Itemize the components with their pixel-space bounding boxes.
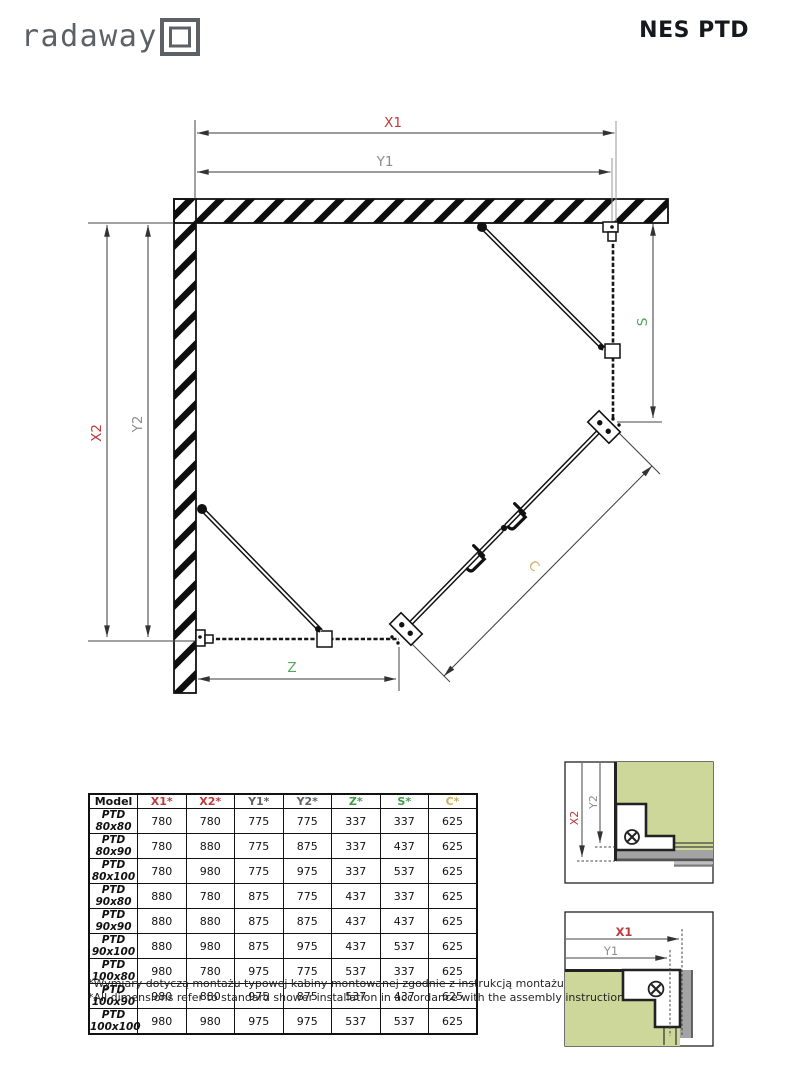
value-cell: 780 (138, 834, 187, 859)
top-wall (174, 199, 668, 223)
wall-bracket-bottom (196, 630, 213, 646)
table-row: PTD 100x100980980975975537537625 (89, 1009, 477, 1035)
value-cell: 337 (380, 884, 429, 909)
glass-clamp-bottom (317, 631, 332, 647)
label-x2: X2 (89, 424, 105, 442)
value-cell: 537 (380, 859, 429, 884)
model-cell: PTD 90x80 (89, 884, 138, 909)
label-c: C (525, 558, 542, 575)
value-cell: 437 (332, 884, 381, 909)
dim-c (444, 466, 652, 676)
value-cell: 437 (332, 934, 381, 959)
model-col-header: Model (89, 794, 138, 809)
value-cell: 875 (235, 884, 284, 909)
value-cell: 780 (138, 859, 187, 884)
logo-square-icon (162, 20, 198, 54)
value-cell: 775 (283, 809, 332, 834)
model-cell: PTD 80x100 (89, 859, 138, 884)
screw-icon (649, 982, 664, 997)
spec-sheet-page: X1 Y1 X2 Y2 S Z C (0, 0, 789, 1081)
value-cell: 437 (332, 909, 381, 934)
table-row: PTD 80x100780980775975337537625 (89, 859, 477, 884)
value-cell: 437 (380, 834, 429, 859)
model-cell: PTD 80x90 (89, 834, 138, 859)
value-cell: 337 (332, 834, 381, 859)
label-s: S (635, 318, 651, 327)
value-cell: 625 (429, 834, 478, 859)
col-header: Z* (332, 794, 381, 809)
table-row: PTD 80x90780880775875337437625 (89, 834, 477, 859)
page-title: NES PTD (639, 18, 749, 43)
value-cell: 875 (235, 934, 284, 959)
door-hinge-left (197, 504, 207, 514)
main-diagram: X1 Y1 X2 Y2 S Z C (88, 115, 668, 693)
detail1-label-x2: X2 (568, 811, 581, 826)
value-cell: 880 (186, 909, 235, 934)
footnotes: *Wymiary dotyczą montażu typowej kabiny … (88, 977, 624, 1004)
col-header: X2* (186, 794, 235, 809)
label-y2: Y2 (130, 416, 146, 434)
value-cell: 880 (138, 884, 187, 909)
table-row: PTD 90x80880780875775437337625 (89, 884, 477, 909)
model-cell: PTD 80x80 (89, 809, 138, 834)
value-cell: 537 (332, 1009, 381, 1035)
value-cell: 875 (235, 909, 284, 934)
diagonal-double-door (406, 426, 604, 628)
door-hinge-top (477, 222, 487, 232)
col-header: Y2* (283, 794, 332, 809)
value-cell: 880 (138, 934, 187, 959)
brand-logo: radaway (21, 22, 158, 52)
detail2-label-x1: X1 (616, 925, 633, 939)
value-cell: 537 (380, 1009, 429, 1035)
col-header: C* (429, 794, 478, 809)
value-cell: 980 (186, 859, 235, 884)
value-cell: 875 (283, 909, 332, 934)
value-cell: 975 (283, 1009, 332, 1035)
value-cell: 625 (429, 859, 478, 884)
left-wall (174, 199, 196, 693)
detail1-label-y2: Y2 (587, 795, 600, 810)
value-cell: 775 (235, 809, 284, 834)
value-cell: 975 (235, 1009, 284, 1035)
footnote-en: *All dimensions refer to standard shower… (88, 991, 624, 1005)
value-cell: 625 (429, 934, 478, 959)
value-cell: 980 (186, 1009, 235, 1035)
value-cell: 780 (138, 809, 187, 834)
glass-panels (197, 225, 613, 639)
value-cell: 780 (186, 884, 235, 909)
wall-bracket-top (603, 222, 618, 241)
value-cell: 625 (429, 809, 478, 834)
model-cell: PTD 90x100 (89, 934, 138, 959)
col-header: X1* (138, 794, 187, 809)
value-cell: 625 (429, 1009, 478, 1035)
value-cell: 625 (429, 909, 478, 934)
value-cell: 880 (186, 834, 235, 859)
value-cell: 980 (138, 1009, 187, 1035)
col-header: Y1* (235, 794, 284, 809)
value-cell: 437 (380, 909, 429, 934)
label-x1: X1 (384, 115, 402, 131)
model-cell: PTD 90x90 (89, 909, 138, 934)
glass-clamp-side (605, 344, 620, 358)
value-cell: 775 (235, 834, 284, 859)
door-meeting-point (501, 525, 507, 531)
value-cell: 980 (186, 934, 235, 959)
value-cell: 775 (235, 859, 284, 884)
value-cell: 880 (138, 909, 187, 934)
value-cell: 975 (283, 859, 332, 884)
value-cell: 337 (380, 809, 429, 834)
value-cell: 625 (429, 884, 478, 909)
label-y1: Y1 (376, 154, 394, 170)
value-cell: 337 (332, 859, 381, 884)
value-cell: 537 (380, 934, 429, 959)
value-cell: 337 (332, 809, 381, 834)
screw-icon (625, 830, 639, 844)
table-row: PTD 90x100880980875975437537625 (89, 934, 477, 959)
label-z: Z (287, 660, 296, 676)
value-cell: 780 (186, 809, 235, 834)
table-row: PTD 80x80780780775775337337625 (89, 809, 477, 834)
detail-section-x2y2: X2 Y2 (565, 762, 713, 883)
door-open-top (477, 222, 604, 350)
detail2-label-y1: Y1 (603, 944, 618, 958)
value-cell: 975 (283, 934, 332, 959)
model-cell: PTD 100x100 (89, 1009, 138, 1035)
door-open-left (197, 504, 321, 632)
footnote-pl: *Wymiary dotyczą montażu typowej kabiny … (88, 977, 624, 991)
col-header: S* (380, 794, 429, 809)
table-header-row: ModelX1*X2*Y1*Y2*Z*S*C* (89, 794, 477, 809)
value-cell: 875 (283, 834, 332, 859)
value-cell: 775 (283, 884, 332, 909)
table-row: PTD 90x90880880875875437437625 (89, 909, 477, 934)
